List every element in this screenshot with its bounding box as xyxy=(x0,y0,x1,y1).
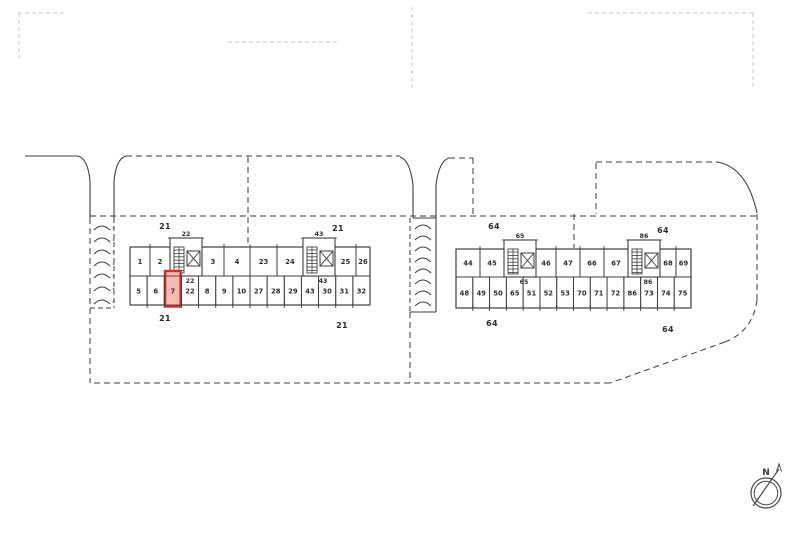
core-label-top: 43 xyxy=(315,231,324,238)
shrub-dot xyxy=(113,263,115,265)
unit-number: 9 xyxy=(222,288,227,296)
shrub-dot xyxy=(113,301,115,303)
unit-number: 23 xyxy=(259,258,269,266)
unit-number: 50 xyxy=(493,290,503,298)
unit-number: 27 xyxy=(254,288,264,296)
unit-number: 10 xyxy=(237,288,247,296)
unit-number: 69 xyxy=(679,260,689,268)
unit-number: 25 xyxy=(341,258,351,266)
unit-number: 65 xyxy=(510,290,520,298)
plot-number-label: 21 xyxy=(159,314,171,323)
shrub-dot xyxy=(113,251,115,253)
unit-number: 2 xyxy=(158,258,163,266)
core-label-bottom: 65 xyxy=(520,279,529,286)
core-label-top: 22 xyxy=(182,231,191,238)
site-plan-drawing: 1234232425262222434356722891027282943303… xyxy=(0,0,800,533)
core-label-top: 65 xyxy=(516,233,525,240)
unit-number: 68 xyxy=(663,260,673,268)
unit-number: 30 xyxy=(322,288,332,296)
core-label-bottom: 22 xyxy=(186,278,195,285)
unit-number: 6 xyxy=(153,288,158,296)
plot-number-label: 21 xyxy=(332,224,344,233)
plot-number-label: 64 xyxy=(488,222,500,231)
unit-number: 5 xyxy=(136,288,141,296)
core-label-top: 86 xyxy=(640,233,649,240)
unit-number: 45 xyxy=(487,260,497,268)
unit-number: 32 xyxy=(357,288,367,296)
shrub-dot xyxy=(113,275,115,277)
unit-number: 70 xyxy=(577,290,587,298)
unit-number: 74 xyxy=(661,290,671,298)
unit-number: 48 xyxy=(460,290,470,298)
plot-number-label: 64 xyxy=(662,325,674,334)
unit-number: 8 xyxy=(205,288,210,296)
unit-number: 52 xyxy=(544,290,554,298)
unit-number: 24 xyxy=(285,258,295,266)
unit-number: 28 xyxy=(271,288,281,296)
unit-number: 1 xyxy=(138,258,143,266)
unit-number: 86 xyxy=(628,290,638,298)
plot-number-label: 64 xyxy=(486,319,498,328)
unit-number: 51 xyxy=(527,290,537,298)
unit-number: 4 xyxy=(235,258,240,266)
unit-number: 73 xyxy=(644,290,654,298)
unit-number: 66 xyxy=(587,260,597,268)
plot-number-label: 21 xyxy=(159,222,171,231)
core-label-bottom: 43 xyxy=(319,278,328,285)
unit-number: 53 xyxy=(560,290,570,298)
site-plan-page: 1234232425262222434356722891027282943303… xyxy=(0,0,800,533)
compass-north-label: N xyxy=(762,468,770,478)
unit-number: 7 xyxy=(170,288,175,296)
shrub-dot xyxy=(113,227,115,229)
shrub-dot xyxy=(113,288,115,290)
unit-number: 3 xyxy=(211,258,216,266)
unit-number: 49 xyxy=(476,290,486,298)
unit-number: 72 xyxy=(611,290,621,298)
shrub-dot xyxy=(113,239,115,241)
unit-number: 71 xyxy=(594,290,604,298)
plot-number-label: 21 xyxy=(336,321,348,330)
unit-number: 75 xyxy=(678,290,688,298)
unit-number: 29 xyxy=(288,288,298,296)
unit-number: 67 xyxy=(611,260,621,268)
unit-number: 26 xyxy=(358,258,368,266)
unit-number: 22 xyxy=(185,288,195,296)
core-label-bottom: 86 xyxy=(644,279,653,286)
unit-number: 47 xyxy=(563,260,573,268)
unit-number: 44 xyxy=(463,260,473,268)
plot-number-label: 64 xyxy=(657,226,669,235)
unit-number: 43 xyxy=(305,288,315,296)
unit-number: 31 xyxy=(340,288,350,296)
unit-number: 46 xyxy=(541,260,551,268)
